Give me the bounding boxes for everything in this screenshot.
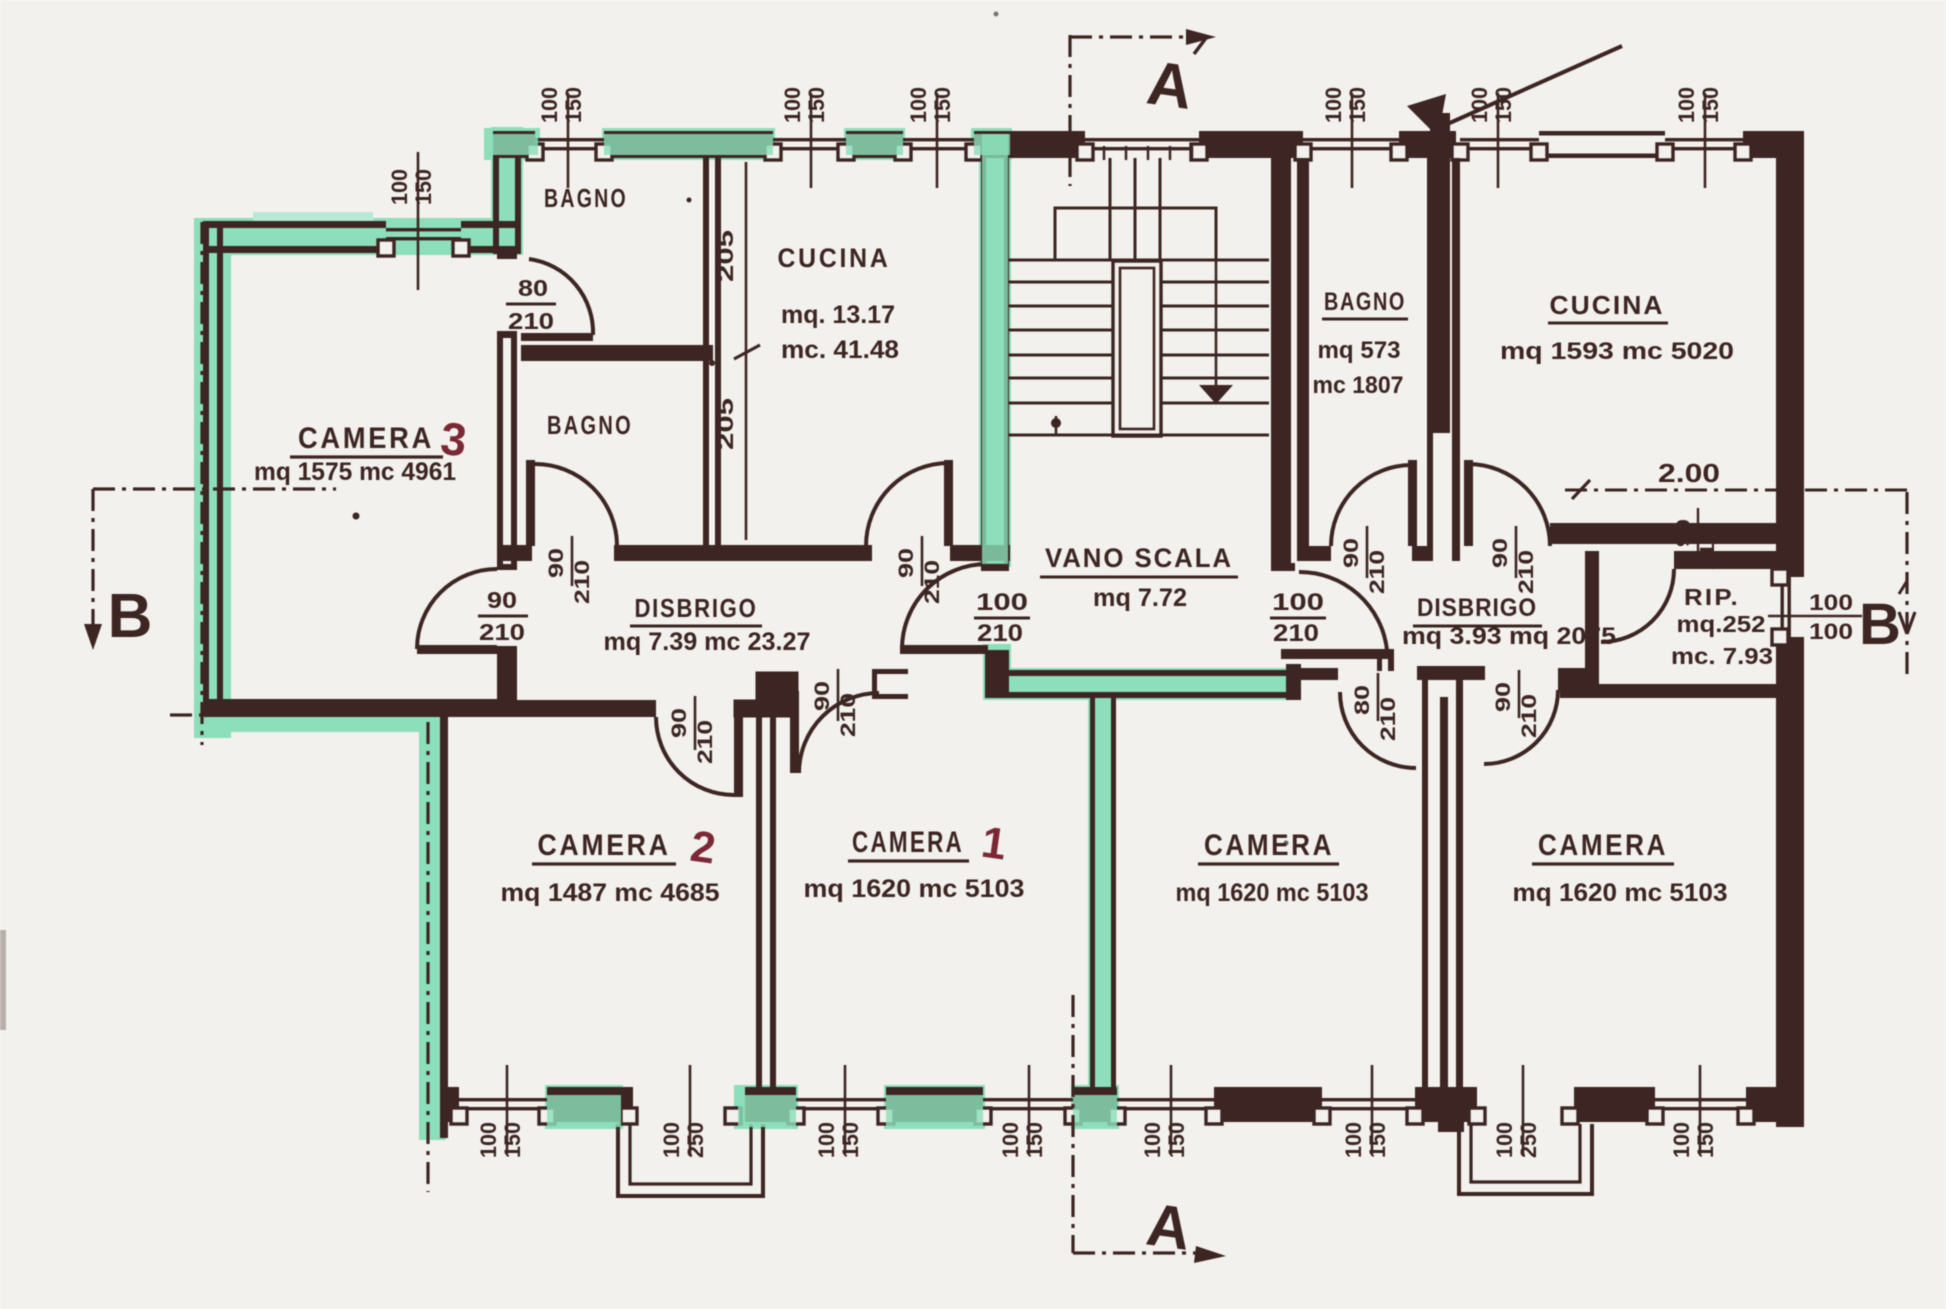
svg-text:CAMERA: CAMERA [538, 829, 671, 862]
svg-text:210: 210 [1515, 550, 1538, 594]
svg-text:150: 150 [838, 1122, 863, 1158]
svg-text:mq 1575 mc 4961: mq 1575 mc 4961 [254, 458, 456, 486]
svg-text:VANO SCALA: VANO SCALA [1045, 543, 1233, 573]
svg-text:210: 210 [479, 619, 525, 645]
svg-text:210: 210 [1377, 697, 1400, 741]
svg-text:150: 150 [1693, 1122, 1718, 1158]
svg-text:100: 100 [976, 589, 1028, 616]
svg-text:150: 150 [804, 87, 829, 123]
svg-text:100: 100 [1492, 1122, 1517, 1158]
svg-text:150: 150 [1698, 87, 1723, 123]
svg-text:205: 205 [713, 398, 738, 450]
svg-text:B: B [108, 582, 153, 651]
svg-text:100: 100 [476, 1122, 501, 1158]
svg-text:100: 100 [1809, 619, 1853, 644]
svg-text:210: 210 [1273, 620, 1319, 647]
svg-text:100: 100 [998, 1122, 1023, 1158]
svg-text:90: 90 [1492, 682, 1515, 712]
svg-text:mq 573: mq 573 [1318, 337, 1401, 364]
svg-text:100: 100 [537, 87, 562, 123]
svg-text:90: 90 [1340, 538, 1363, 568]
svg-text:2.00: 2.00 [1658, 458, 1720, 488]
svg-text:100: 100 [1272, 589, 1324, 616]
svg-text:CUCINA: CUCINA [778, 243, 891, 273]
svg-text:mq 1620 mc 5103: mq 1620 mc 5103 [1176, 879, 1369, 907]
svg-text:100: 100 [1809, 590, 1853, 615]
svg-text:150: 150 [561, 87, 586, 123]
svg-text:B: B [1859, 592, 1901, 657]
svg-text:mc. 41.48: mc. 41.48 [781, 336, 899, 364]
svg-text:210: 210 [977, 620, 1023, 647]
svg-text:205: 205 [713, 230, 738, 282]
svg-text:CAMERA: CAMERA [1204, 829, 1334, 862]
svg-text:mq 1487 mc 4685: mq 1487 mc 4685 [501, 879, 720, 907]
svg-text:150: 150 [1022, 1122, 1047, 1158]
svg-text:100: 100 [906, 87, 931, 123]
svg-text:mc 1807: mc 1807 [1313, 372, 1404, 399]
svg-text:150: 150 [1345, 87, 1370, 123]
svg-text:250: 250 [683, 1122, 708, 1158]
svg-text:mq 1620 mc 5103: mq 1620 mc 5103 [1513, 879, 1728, 907]
svg-text:CAMERA: CAMERA [1538, 829, 1668, 862]
svg-text:100: 100 [1669, 1122, 1694, 1158]
svg-text:80: 80 [518, 275, 548, 301]
svg-text:mq 3.93 mq 2075: mq 3.93 mq 2075 [1402, 623, 1616, 650]
svg-text:A: A [1143, 1191, 1195, 1263]
svg-text:210: 210 [1518, 694, 1541, 738]
svg-text:CAMERA: CAMERA [298, 422, 434, 455]
svg-text:mq. 13.17: mq. 13.17 [781, 301, 895, 329]
svg-text:CUCINA: CUCINA [1550, 290, 1665, 320]
svg-text:100: 100 [1321, 87, 1346, 123]
svg-text:210: 210 [571, 560, 594, 604]
svg-text:100: 100 [814, 1122, 839, 1158]
svg-text:mq 1620 mc 5103: mq 1620 mc 5103 [804, 875, 1025, 903]
svg-text:100: 100 [659, 1122, 684, 1158]
svg-text:150: 150 [411, 169, 436, 205]
svg-text:90: 90 [545, 548, 568, 578]
svg-text:BAGNO: BAGNO [547, 410, 633, 440]
svg-text:90: 90 [895, 548, 918, 578]
svg-text:210: 210 [1697, 530, 1719, 570]
svg-text:DISBRIGO: DISBRIGO [1417, 594, 1537, 622]
svg-text:mq 1593 mc 5020: mq 1593 mc 5020 [1500, 338, 1734, 365]
svg-text:210: 210 [1366, 550, 1389, 594]
svg-text:150: 150 [930, 87, 955, 123]
svg-text:100: 100 [387, 169, 412, 205]
svg-text:210: 210 [694, 720, 717, 764]
svg-text:150: 150 [1164, 1122, 1189, 1158]
svg-text:A: A [1143, 48, 1197, 123]
svg-text:90: 90 [487, 587, 517, 613]
svg-text:210: 210 [508, 308, 554, 334]
svg-text:150: 150 [1365, 1122, 1390, 1158]
svg-text:150: 150 [500, 1122, 525, 1158]
svg-text:RIP.: RIP. [1684, 584, 1740, 610]
svg-text:100: 100 [1674, 87, 1699, 123]
svg-text:90: 90 [1673, 519, 1695, 547]
svg-text:250: 250 [1516, 1122, 1541, 1158]
svg-text:mq 7.39 mc 23.27: mq 7.39 mc 23.27 [604, 628, 811, 656]
svg-text:100: 100 [780, 87, 805, 123]
svg-text:CAMERA: CAMERA [852, 826, 964, 859]
svg-text:mc. 7.93: mc. 7.93 [1671, 643, 1773, 669]
svg-text:90: 90 [668, 708, 691, 738]
svg-text:90: 90 [1489, 538, 1512, 568]
svg-text:100: 100 [1341, 1122, 1366, 1158]
svg-text:DISBRIGO: DISBRIGO [635, 593, 758, 623]
svg-text:BAGNO: BAGNO [1324, 288, 1406, 316]
svg-text:90: 90 [811, 681, 834, 711]
svg-text:100: 100 [1140, 1122, 1165, 1158]
svg-text:mq.252: mq.252 [1677, 611, 1766, 637]
svg-text:BAGNO: BAGNO [544, 183, 628, 213]
svg-text:80: 80 [1351, 685, 1374, 715]
svg-text:210: 210 [837, 693, 860, 737]
svg-text:mq 7.72: mq 7.72 [1093, 584, 1187, 612]
